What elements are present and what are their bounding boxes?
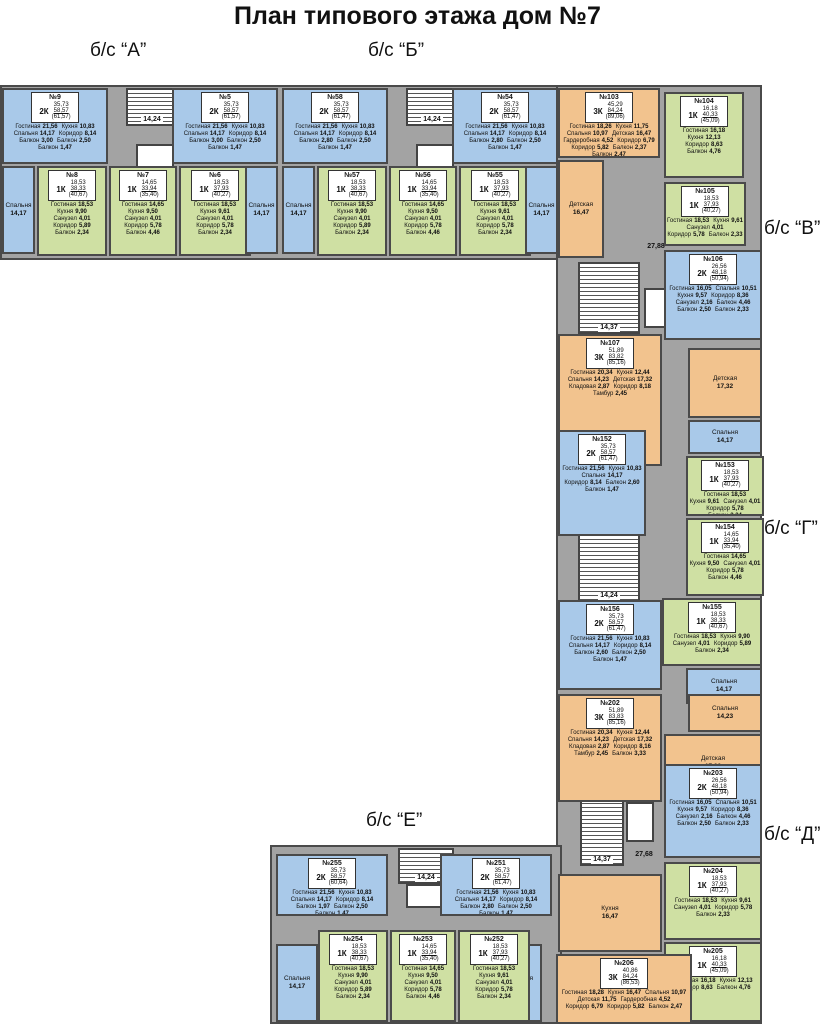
room-area: 14,17 [481,897,496,903]
apartment-type: 1К [696,617,705,626]
room-area: 2,47 [614,152,626,158]
room-area: 2,33 [731,232,743,238]
apartment-type-areas: 1К18,5337,93(40,27) [195,180,235,199]
room-area: 17,32 [637,377,652,383]
apartment-type-areas: 2К35,7358,57(61,47) [582,444,622,463]
apartment-areas: 26,5648,18(50,94) [710,264,729,283]
apartment-type-areas: 1К16,1840,33(45,09) [693,956,733,975]
room-area: 9,50 [146,209,158,215]
room-area: 3,33 [634,751,646,757]
room-area: 10,83 [635,636,650,642]
room-area: 2,34 [358,994,370,1000]
apartment-unit-58-part1: Спальня14,17 [282,166,315,254]
room-area: 5,78 [741,905,753,911]
room-area: 2,50 [520,904,532,910]
staircase-stairs-b: 14,24 [406,88,458,126]
room-area: 8,14 [535,131,547,137]
room-name: Кухня [690,499,706,505]
apartment-stamp: №1551К18,5338,33(40,67) [688,602,736,633]
room-name: Детская [613,377,635,383]
room-label: Коридор8,16 [614,744,651,751]
room-name: Коридор [607,1004,631,1010]
apartment-stamp: №1073К51,8983,82(85,16) [586,338,634,369]
apartment-area_bal: (40,27) [722,482,741,488]
room-name: Коридор [571,145,595,151]
room-label: Спальня14,23 [568,737,609,744]
room-label: Кухня12,44 [617,370,650,377]
apartment-number: №8 [52,172,92,180]
room-name: Балкон [335,230,355,236]
room-label: Кухня9,61 [713,218,743,225]
apartment-unit-106: №1062К26,5648,18(50,94)Гостиная16,05Спал… [664,250,762,340]
apartment-room-list: Гостиная20,34Кухня12,44Спальня14,23Детск… [561,370,659,399]
room-label: Гостиная18,53 [474,202,516,209]
room-label: Балкон3,00 [189,138,223,145]
apartment-room-list: Гостиная18,53Кухня9,61Санузел4,01Коридор… [462,202,528,238]
apartment-unit-104: №1041К16,1840,33(45,09)Гостиная16,18Кухн… [664,92,744,178]
room-label: Балкон2,50 [337,138,371,145]
apartment-type-areas: 1К14,6533,94(35,40) [123,180,163,199]
room-area: 2,47 [671,1004,683,1010]
apartment-unit-152: №1522К35,7358,57(61,47)Гостиная21,56Кухн… [558,430,646,536]
room-label: Санузел4,01 [404,980,441,987]
room-area: 5,89 [359,223,371,229]
room-area: 8,63 [701,985,713,991]
room-name: Спальня [184,131,208,137]
apartment-number: №202 [590,700,630,708]
apartment-room-list: Гостиная14,65Кухня9,50Санузел4,01Коридор… [392,202,454,238]
room-name: Санузел [404,980,427,986]
room-area: 8,14 [526,897,538,903]
apartment-areas: 35,7358,57(61,57) [222,102,241,121]
floor-plan: План типового этажа дом №7 14,2416,1414,… [0,0,835,1024]
room-name: Балкон [488,145,508,151]
room-label: Коридор8,14 [614,643,651,650]
room-label: Коридор5,78 [715,905,752,912]
apartment-number: №6 [195,172,235,180]
room-name: Балкон [677,821,697,827]
room-name: Кухня [408,209,424,215]
room-label: Детская17,32 [713,375,737,391]
room-label: Спальня14,17 [248,202,274,218]
room-area: 1,47 [510,145,522,151]
room-name: Гостиная [51,202,76,208]
apartment-areas: 18,5337,93(40,27) [212,180,231,199]
room-area: 2,33 [718,912,730,918]
room-area: 2,33 [737,821,749,827]
apartment-number: №105 [685,188,725,196]
room-area: 14,17 [317,897,332,903]
apartment-room-list: Гостиная18,53Кухня9,90Санузел4,01Коридор… [40,202,104,238]
room-label: Гостиная21,56 [15,124,57,131]
room-area: 5,82 [633,1004,645,1010]
room-name: Кухня [720,978,736,984]
apartment-room-list: Гостиная21,56Кухня10,83Спальня14,17Корид… [455,124,555,153]
room-area: 4,01 [430,980,442,986]
room-label: Коридор8,14 [564,480,601,487]
apartment-areas: 14,6533,94(35,40) [722,532,741,551]
room-label: Коридор5,78 [706,568,743,575]
room-area: 9,90 [738,634,750,640]
room-label: Гостиная21,56 [562,466,604,473]
room-name: Детская [701,755,725,762]
room-name: Коридор [509,131,533,137]
apartment-type-areas: 2К35,7358,57(61,47) [315,102,355,121]
apartment-type-areas: 1К18,5337,93(40,27) [474,944,514,963]
room-name: Гостиная [570,730,595,736]
room-name: Спальня [645,990,669,996]
apartment-area_bal: (85,16) [607,720,626,726]
room-name: Кухня [232,124,248,130]
room-label: Балкон4,76 [687,149,721,156]
room-area: 9,61 [218,209,230,215]
apartment-room-list: Гостиная18,53Кухня9,61Санузел4,01Коридор… [461,966,527,1002]
apartment-unit-202: №2023К51,8983,83(85,16)Гостиная20,34Кухн… [558,694,662,802]
apartment-type: 2К [594,619,603,628]
room-name: Балкон [478,230,498,236]
room-label: Балкон2,50 [677,307,711,314]
room-area: 9,50 [426,209,438,215]
apartment-stamp: №81К18,5338,33(40,67) [48,170,96,201]
room-name: Коридор [404,223,428,229]
apartment-number: №154 [705,524,745,532]
apartment-type: 1К [127,185,136,194]
apartment-type: 3К [608,973,617,982]
staircase-area-label: 14,37 [591,856,613,864]
apartment-unit-5-part1: Спальня14,17 [245,166,278,254]
apartment-area_bal: (35,40) [420,956,439,962]
room-area: 10,97 [671,990,686,996]
room-label: Санузел4,01 [124,216,161,223]
room-name: Кухня [677,807,693,813]
room-name: Кухня [609,466,625,472]
room-area: 10,83 [80,124,95,130]
room-label: Кухня10,83 [62,124,95,131]
room-name: Коридор [685,142,709,148]
room-name: Кладовая [569,384,596,390]
room-name: Балкон [38,145,58,151]
room-name: Спальня [712,429,738,436]
apartment-number: №9 [35,94,75,102]
room-area: 10,51 [742,800,757,806]
apartment-unit-254: №2541К18,5338,33(40,67)Гостиная18,53Кухн… [318,930,388,1022]
room-area: 8,14 [362,897,374,903]
room-area: 14,17 [248,210,274,218]
room-name: Санузел [53,216,76,222]
room-area: 14,65 [429,202,444,208]
room-name: Кухня [687,135,703,141]
room-name: Коридор [706,506,730,512]
apartment-unit-253: №2531К14,6533,94(35,40)Гостиная14,65Кухн… [390,930,456,1022]
room-name: Кухня [339,890,355,896]
room-area: 2,16 [701,814,713,820]
block-label-v: б/с “В” [764,218,820,240]
room-name: Коридор [667,232,691,238]
room-label: Санузел4,01 [673,641,710,648]
room-label: Спальня10,97 [645,990,686,997]
room-area: 4,46 [730,575,742,581]
apartment-area_bal: (35,40) [140,192,159,198]
room-name: Балкон [717,985,737,991]
room-name: Спальня [285,202,311,209]
room-area: 21,56 [320,890,335,896]
room-label: Санузел2,16 [676,814,713,821]
room-name: Спальня [291,897,315,903]
room-name: Кухня [338,973,354,979]
room-label: Санузел4,01 [404,216,441,223]
room-area: 4,01 [360,980,372,986]
room-name: Коридор [196,223,220,229]
room-name: Гостиная [122,202,147,208]
apartment-areas: 16,1840,33(45,09) [701,106,720,125]
apartment-stamp: №2531К14,6533,94(35,40) [399,934,447,965]
room-area: 21,56 [484,890,499,896]
room-label: Балкон4,76 [717,985,751,992]
apartment-stamp: №551К18,5337,93(40,27) [471,170,519,201]
room-area: 16,47 [636,131,651,137]
room-name: Кухня [512,124,528,130]
apartment-unit-5: №52К35,7358,57(61,57)Гостиная21,56Кухня1… [172,88,278,164]
room-area: 18,53 [500,966,515,972]
room-area: 10,83 [250,124,265,130]
apartment-type-areas: 1К16,1840,33(45,09) [684,106,724,125]
apartment-unit-55: №551К18,5337,93(40,27)Гостиная18,53Кухня… [459,166,531,256]
room-name: Гостиная [667,218,692,224]
apartment-room-list: Гостиная14,65Кухня9,50Санузел4,01Коридор… [112,202,174,238]
room-area: 14,65 [149,202,164,208]
room-label: Балкон2,33 [709,232,743,239]
room-label: Санузел4,01 [53,216,90,223]
apartment-areas: 40,8684,24(86,53) [621,968,640,987]
room-area: 12,13 [706,135,721,141]
room-label: Коридор8,14 [229,131,266,138]
room-name: Кухня [690,561,706,567]
staircase-stairs-g: 14,24 [578,526,640,602]
apartment-number: №152 [582,436,622,444]
room-name: Санузел [676,300,699,306]
room-name: Балкон [715,821,735,827]
room-label: Балкон1,47 [593,657,627,664]
room-area: 10,83 [357,890,372,896]
room-name: Балкон [55,230,75,236]
room-name: Санузел [475,980,498,986]
room-area: 4,01 [749,499,761,505]
room-area: 2,60 [596,650,608,656]
apartment-type: 1К [688,111,697,120]
room-label: Коридор8,14 [500,897,537,904]
room-name: Балкон [296,904,316,910]
apartment-unit-6: №61К18,5337,93(40,27)Гостиная18,53Кухня9… [179,166,251,256]
room-name: Кухня [617,730,633,736]
room-name: Балкон [337,138,357,144]
room-area: 2,50 [699,821,711,827]
room-area: 4,01 [430,216,442,222]
room-area: 6,79 [643,138,655,144]
room-name: Коридор [404,987,428,993]
room-label: Коридор5,78 [124,223,161,230]
room-label: Гостиная14,65 [402,966,444,973]
room-area: 1,47 [501,911,513,916]
apartment-area_bal: (61,47) [332,114,351,120]
room-label: Коридор5,89 [53,223,90,230]
room-area: 2,87 [598,384,610,390]
apartment-stamp: №1522К35,7358,57(61,47) [578,434,626,465]
room-label: Спальня14,17 [711,678,737,694]
room-area: 14,23 [712,713,738,721]
room-label: Балкон4,46 [406,994,440,1001]
room-area: 14,17 [528,210,554,218]
room-name: Санузел [723,499,746,505]
apartment-area_bal: (35,40) [420,192,439,198]
staircase-stairs-a: 14,24 [126,88,178,126]
room-area: 14,23 [594,737,609,743]
room-name: Балкон [585,487,605,493]
apartment-area_bal: (40,67) [709,624,728,630]
apartment-areas: 35,7358,57(61,57) [52,102,71,121]
apartment-type-areas: 1К14,6533,94(35,40) [403,180,443,199]
room-label: Балкон1,47 [585,487,619,494]
apartment-area_bal: (85,16) [607,360,626,366]
apartment-areas: 18,5338,33(40,67) [350,944,369,963]
apartment-areas: 35,7358,57(60,64) [329,868,348,887]
room-label: Гостиная20,34 [570,730,612,737]
room-label: Гостиная21,56 [456,890,498,897]
room-area: 17,32 [637,737,652,743]
room-area: 5,89 [360,987,372,993]
room-name: Гостиная [402,966,427,972]
room-name: Детская [713,375,737,382]
room-name: Гостиная [465,124,490,130]
room-label: Балкон2,34 [477,994,511,1001]
room-label: Кухня9,61 [200,209,230,216]
room-area: 18,53 [358,202,373,208]
room-name: Коридор [711,293,735,299]
apartment-unit-206: №2063К40,8684,24(86,53)Гостиная18,28Кухн… [556,954,692,1024]
room-name: Балкон [189,138,209,144]
room-area: 2,34 [500,230,512,236]
apartment-unit-252: №2521К18,5337,93(40,27)Гостиная18,53Кухн… [458,930,530,1022]
room-name: Гостиная [456,890,481,896]
room-area: 2,80 [321,138,333,144]
room-name: Тамбур [593,391,613,397]
apartment-area_bal: (40,27) [492,192,511,198]
room-label: Балкон2,50 [498,904,532,911]
apartment-stamp: №2521К18,5337,93(40,27) [470,934,518,965]
apartment-areas: 35,7358,57(61,47) [599,444,618,463]
room-label: Коридор5,78 [404,223,441,230]
apartment-area_bal: (40,67) [349,192,368,198]
apartment-unit-203: №2032К26,5648,18(50,94)Гостиная16,05Спал… [664,764,762,858]
room-label: Тамбур2,45 [574,751,608,758]
apartment-type: 2К [316,873,325,882]
apartment-stamp: №2552К35,7358,57(60,64) [308,858,356,889]
room-label: Кухня9,57 [677,807,707,814]
staircase-area-label: 14,24 [421,116,443,124]
room-name: Детская [613,737,635,743]
room-label: Балкон2,50 [612,650,646,657]
staircase-stairs-d: 14,37 [580,794,624,866]
apartment-stamp: №1062К26,5648,18(50,94) [689,254,737,285]
room-label: Гостиная18,28 [562,990,604,997]
room-label: Коридор5,78 [404,987,441,994]
room-label: Кухня9,50 [690,561,720,568]
room-label: Балкон2,80 [299,138,333,145]
apartment-room-list: Гостиная16,05Спальня10,51Кухня9,57Коридо… [667,800,759,829]
apartment-area_bal: (50,94) [710,790,729,796]
room-label: Балкон2,34 [55,230,89,237]
apartment-stamp: №571К18,5338,33(40,67) [328,170,376,201]
room-label: Балкон1,47 [38,145,72,152]
apartment-room-list: Гостиная18,53Кухня9,61Санузел4,01Коридор… [689,492,761,516]
room-area: 2,50 [699,307,711,313]
room-area: 2,16 [701,300,713,306]
room-area: 8,14 [255,131,267,137]
room-area: 14,17 [284,983,310,991]
room-area: 1,47 [615,657,627,663]
room-area: 2,34 [499,994,511,1000]
apartment-unit-156: №1562К35,7358,57(61,47)Гостиная21,56Кухн… [558,600,662,690]
staircase-area-label: 14,24 [415,874,437,882]
room-area: 1,47 [337,911,349,916]
room-label: Санузел2,16 [676,300,713,307]
room-area: 16,05 [697,286,712,292]
apartment-areas: 18,5337,93(40,27) [702,196,721,215]
apartment-unit-54-part1: Спальня14,17 [525,166,558,254]
apartment-area_bal: (40,67) [350,956,369,962]
room-area: 5,78 [222,223,234,229]
room-area: 1,47 [340,145,352,151]
room-area: 18,26 [597,124,612,130]
room-area: 5,78 [150,223,162,229]
room-label: Гостиная18,53 [331,202,373,209]
room-label: Коридор5,78 [667,232,704,239]
room-label: Балкон2,34 [198,230,232,237]
elevator-shaft-0 [136,144,174,168]
room-label: Кухня10,83 [617,636,650,643]
apartment-room-list: Гостиная18,53Кухня9,61Санузел4,01Коридор… [667,218,743,240]
room-area: 2,45 [596,751,608,757]
apartment-unit-103: №1033К45,2984,24(89,06)Гостиная18,26Кухн… [558,88,660,158]
room-name: Гостиная [194,202,219,208]
room-area: 4,01 [501,980,513,986]
room-label: Коридор8,63 [685,142,722,149]
room-area: 8,36 [737,293,749,299]
room-label: Спальня14,17 [285,202,311,218]
apartment-area_bal: (61,47) [607,626,626,632]
room-area: 5,89 [740,641,752,647]
room-name: Гостиная [292,890,317,896]
apartment-area_bal: (86,53) [621,980,640,986]
room-label: Кухня9,50 [128,209,158,216]
room-label: Балкон1,47 [318,145,352,152]
room-name: Коридор [711,807,735,813]
room-name: Гостиная [15,124,40,130]
room-name: Кухня [408,973,424,979]
room-label: Спальня14,17 [14,131,55,138]
room-label: Детская17,32 [613,377,652,384]
room-area: 16,05 [697,800,712,806]
room-name: Кухня [337,209,353,215]
apartment-type: 1К [689,201,698,210]
apartment-type-areas: 1К18,5337,93(40,27) [685,196,725,215]
room-area: 1,47 [230,145,242,151]
room-label: Коридор8,14 [509,131,546,138]
apartment-area_bal: (89,06) [606,114,625,120]
apartment-unit-9: №92К35,7358,57(61,57)Гостиная21,56Кухня1… [2,88,108,164]
room-area: 10,83 [627,466,642,472]
apartment-room-list: Гостиная21,56Кухня10,83Спальня14,17Корид… [561,466,643,495]
apartment-area_bal: (40,67) [69,192,88,198]
